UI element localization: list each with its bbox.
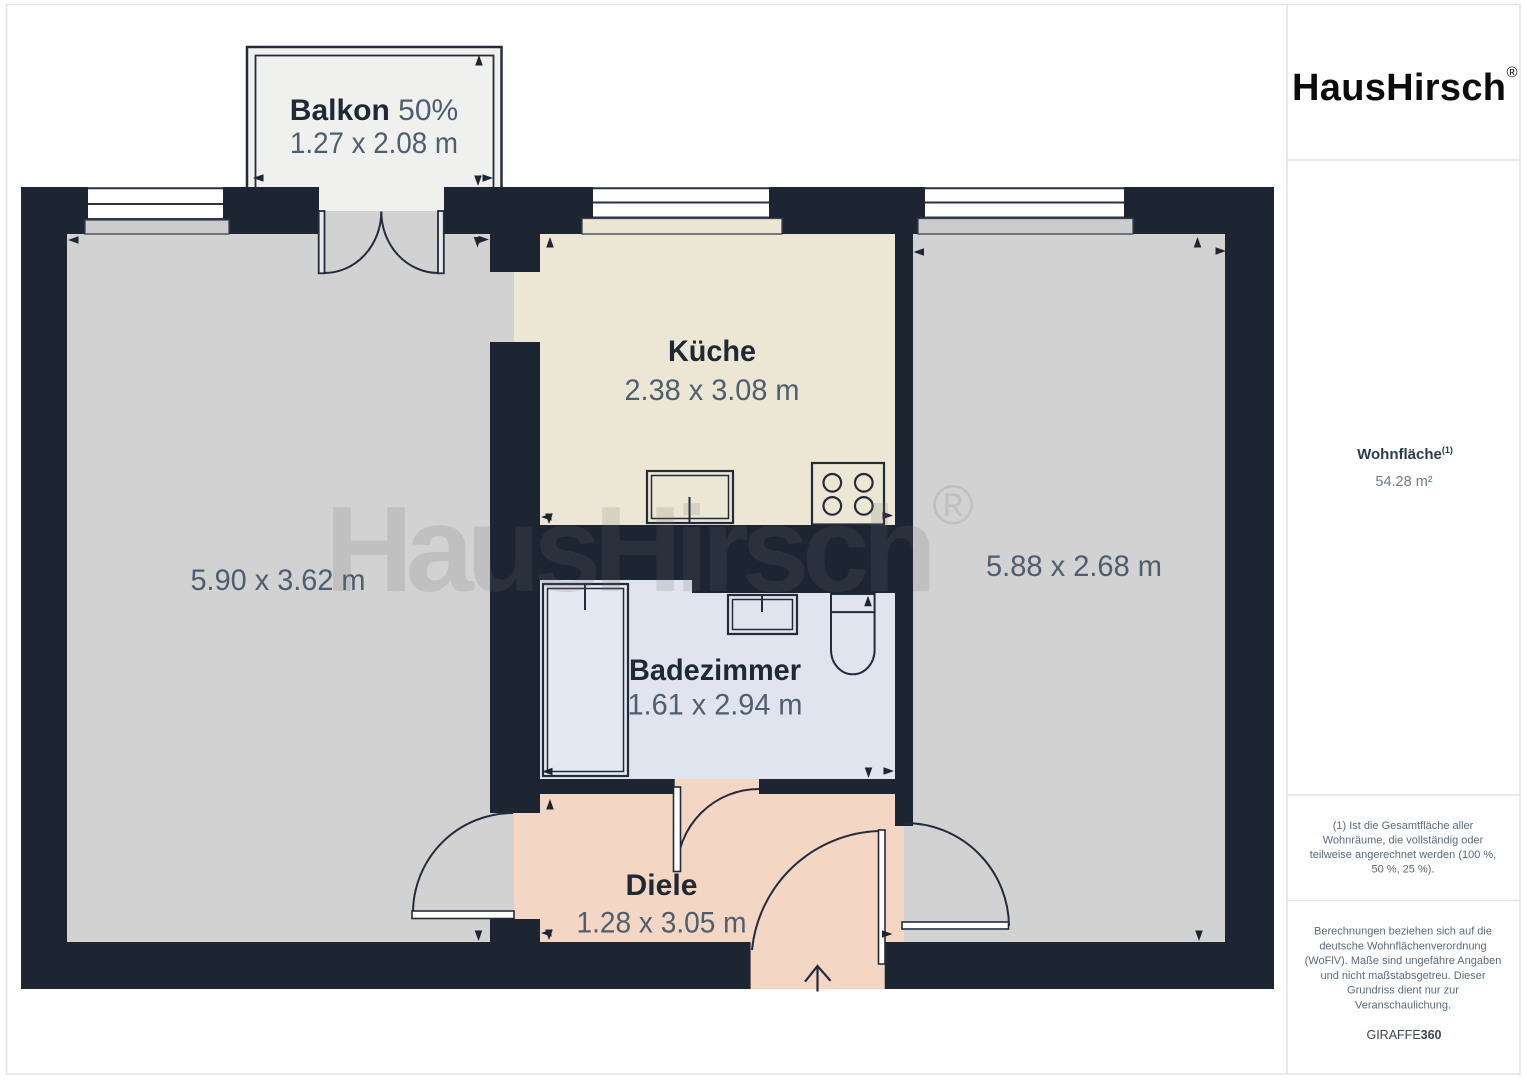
svg-text:1.27 x 2.08 m: 1.27 x 2.08 m <box>290 127 458 160</box>
svg-text:®: ® <box>1506 64 1517 81</box>
svg-text:5.88 x 2.68 m: 5.88 x 2.68 m <box>986 550 1162 583</box>
svg-text:Diele: Diele <box>626 869 698 902</box>
svg-text:54.28 m²: 54.28 m² <box>1375 474 1432 490</box>
svg-text:2.38 x 3.08 m: 2.38 x 3.08 m <box>625 374 800 407</box>
svg-text:5.90 x 3.62 m: 5.90 x 3.62 m <box>191 564 366 597</box>
svg-text:50 %, 25 %).: 50 %, 25 %). <box>1372 864 1435 876</box>
svg-text:Wohnfläche(1): Wohnfläche(1) <box>1357 445 1453 463</box>
svg-text:(WoFlV). Maße sind ungefähre A: (WoFlV). Maße sind ungefähre Angaben <box>1305 955 1502 967</box>
svg-text:Berechnungen beziehen sich auf: Berechnungen beziehen sich auf die <box>1314 926 1492 938</box>
svg-text:HausHirsch: HausHirsch <box>325 481 937 617</box>
svg-text:Badezimmer: Badezimmer <box>629 654 801 687</box>
svg-text:und nicht maßstabsgetreu. Dies: und nicht maßstabsgetreu. Dieser <box>1320 970 1485 982</box>
svg-text:teilweise angerechnet werden (: teilweise angerechnet werden (100 %, <box>1310 849 1497 861</box>
svg-text:HausHirsch: HausHirsch <box>1292 67 1506 109</box>
svg-text:deutsche Wohnflächenverordnung: deutsche Wohnflächenverordnung <box>1319 940 1486 952</box>
svg-text:Grundriss dient nur zur: Grundriss dient nur zur <box>1347 985 1459 997</box>
svg-text:(1) Ist die Gesamtfläche aller: (1) Ist die Gesamtfläche aller <box>1333 820 1474 832</box>
svg-text:Balkon 50%: Balkon 50% <box>290 94 458 127</box>
svg-text:1.61 x 2.94 m: 1.61 x 2.94 m <box>628 689 803 722</box>
svg-text:Küche: Küche <box>668 335 756 368</box>
svg-text:®: ® <box>932 473 973 536</box>
svg-text:Veranschaulichung.: Veranschaulichung. <box>1355 1000 1451 1012</box>
svg-text:GIRAFFE360: GIRAFFE360 <box>1366 1028 1441 1042</box>
svg-text:1.28 x 3.05 m: 1.28 x 3.05 m <box>577 907 747 940</box>
svg-text:Wohnräume, die vollständig ode: Wohnräume, die vollständig oder <box>1323 835 1484 847</box>
